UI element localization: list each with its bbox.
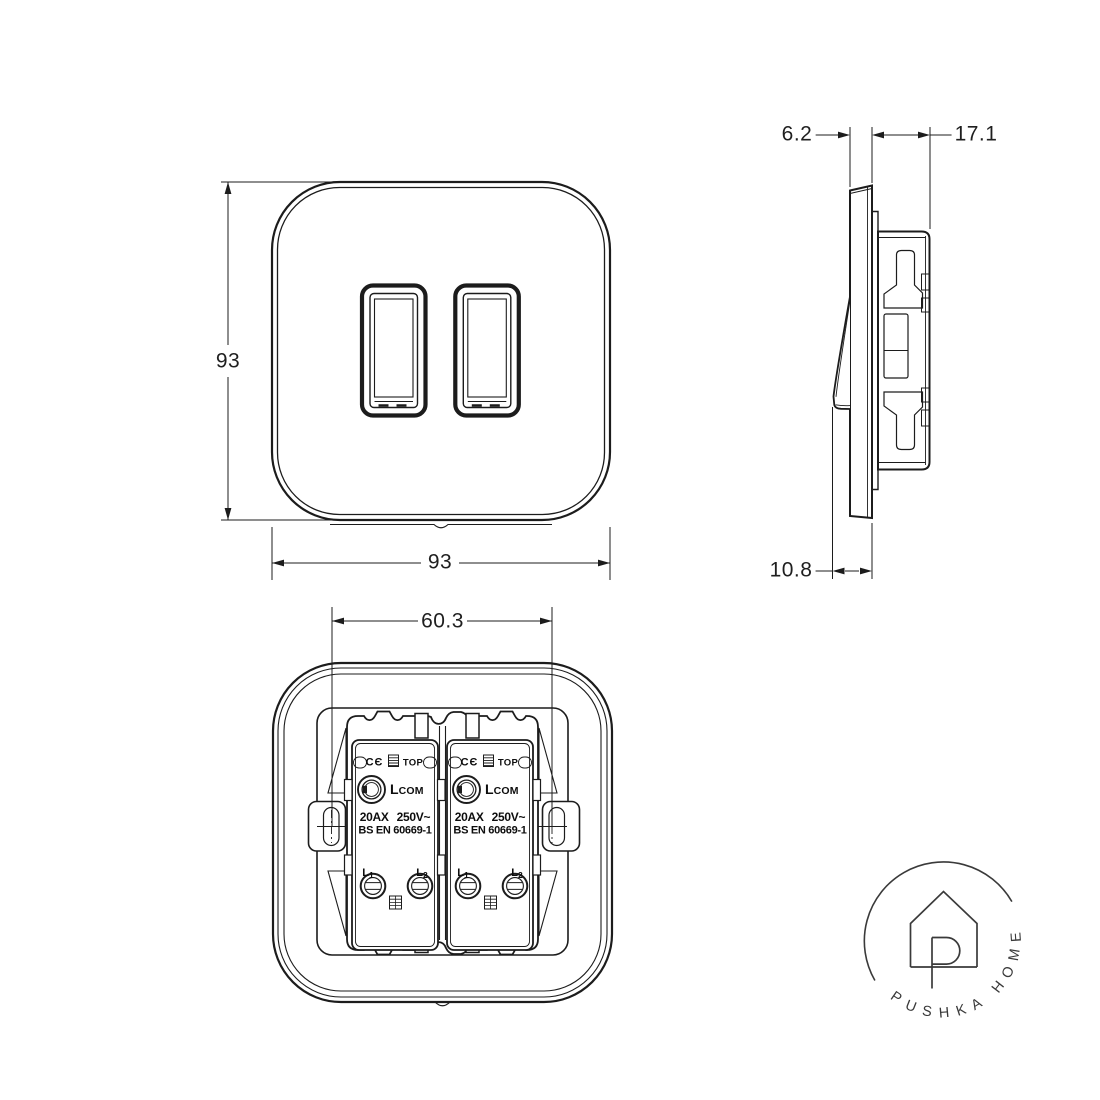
side-dimension-lines	[812, 127, 953, 579]
module-labels-left: CЄ TOP L COM 20AX 250V~ BS EN 60669-1 L1…	[352, 740, 438, 950]
front-height-dimension: 93	[213, 351, 243, 372]
rocker-right	[455, 286, 519, 416]
lcom-label: L COM	[485, 782, 519, 797]
front-plate	[272, 182, 610, 528]
mounting-wing-right	[538, 802, 580, 852]
rocker-left	[362, 286, 426, 416]
technical-drawing-page: 93 93	[0, 0, 1100, 1100]
front-view-drawing	[190, 150, 650, 610]
front-width-dimension: 93	[425, 552, 455, 573]
side-depth-dimension: 17.1	[952, 124, 1001, 145]
ce-mark: CЄ	[366, 758, 384, 769]
side-protrusion-dimension: 10.8	[767, 560, 816, 581]
lcom-label: L COM	[390, 782, 424, 797]
mounting-centres-dimension: 60.3	[418, 611, 467, 632]
l1-label: L1	[362, 864, 373, 880]
top-label: TOP	[498, 758, 518, 768]
logo-circle-arc	[864, 862, 1012, 981]
l1-label: L1	[457, 864, 468, 880]
logo-p-bowl	[932, 938, 960, 965]
side-rocker-profile	[834, 297, 851, 410]
side-plate-profile	[850, 186, 872, 519]
rating-label: 20AX 250V~	[352, 811, 438, 823]
l2-label: L2	[416, 864, 427, 880]
module-labels-right: CЄ TOP L COM 20AX 250V~ BS EN 60669-1 L1…	[447, 740, 533, 950]
standard-label: BS EN 60669-1	[447, 825, 533, 836]
top-label: TOP	[403, 758, 423, 768]
house-icon	[911, 892, 978, 989]
brand-logo: PUSHKA HOME	[850, 845, 1040, 1035]
brand-name-text: PUSHKA HOME	[887, 924, 1025, 1022]
mounting-wing-left	[309, 802, 347, 852]
side-mounting-box	[872, 212, 930, 490]
side-thickness-dimension: 6.2	[779, 124, 816, 145]
plate-bottom-bevel	[330, 525, 552, 528]
rating-label: 20AX 250V~	[447, 811, 533, 823]
l2-label: L2	[511, 864, 522, 880]
standard-label: BS EN 60669-1	[352, 825, 438, 836]
ce-mark: CЄ	[461, 758, 479, 769]
side-view-drawing	[760, 100, 1030, 600]
